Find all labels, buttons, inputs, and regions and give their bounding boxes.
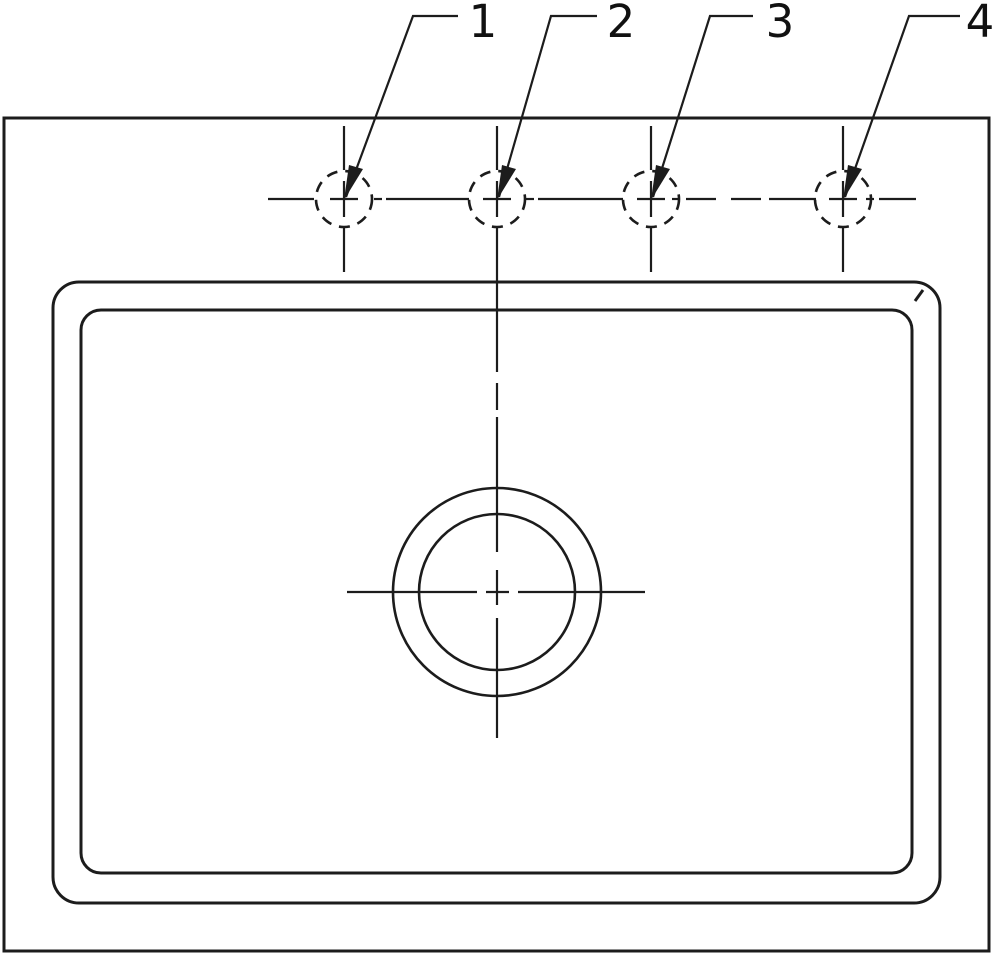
part-label-4: 4 bbox=[966, 0, 992, 48]
part-label-2: 2 bbox=[607, 0, 636, 48]
leader-arrowheads bbox=[344, 165, 862, 200]
sink-top-view-figure: 1 2 3 4 bbox=[0, 0, 992, 956]
part-label-1: 1 bbox=[469, 0, 498, 48]
leader-callouts-group: 1 2 3 4 bbox=[344, 0, 992, 200]
leader-line-4 bbox=[845, 16, 960, 197]
part-labels: 1 2 3 4 bbox=[469, 0, 992, 48]
leader-line-1 bbox=[346, 16, 458, 197]
rim-corner-tick bbox=[915, 290, 923, 301]
drawing-canvas: 1 2 3 4 bbox=[0, 0, 992, 956]
part-label-3: 3 bbox=[766, 0, 795, 48]
